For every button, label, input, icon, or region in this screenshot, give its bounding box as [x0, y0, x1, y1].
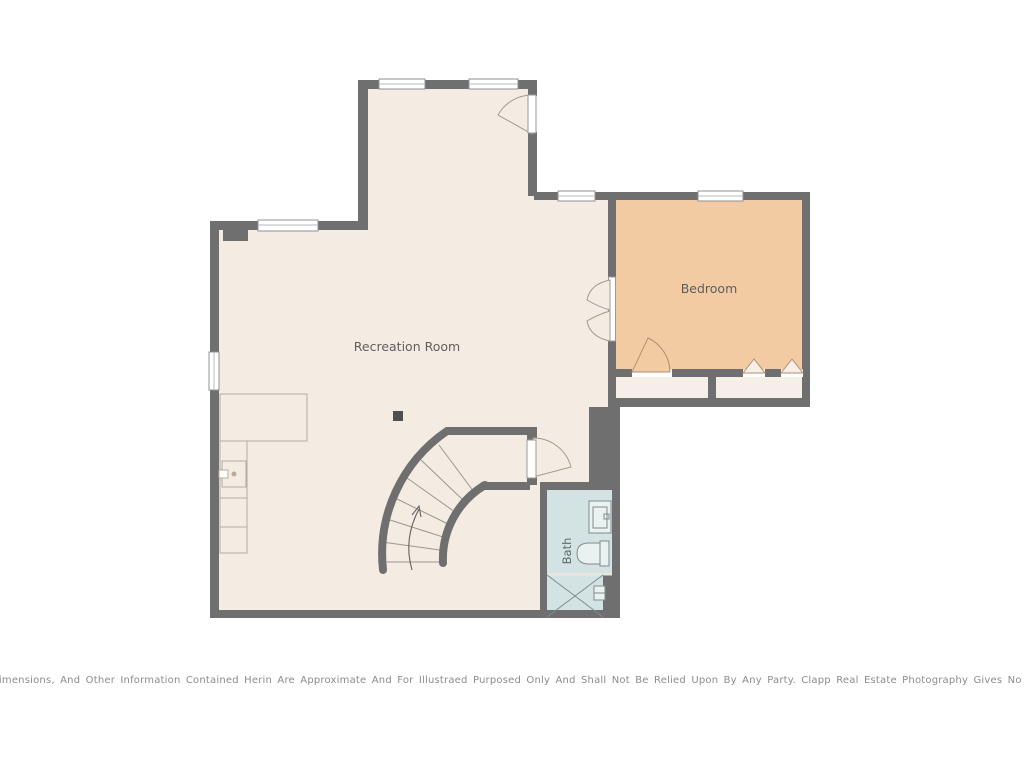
room-floors: [214, 84, 806, 617]
floor-plan-page: Recreation Room Bedroom Bath Dimensions,…: [0, 0, 1024, 768]
window: [209, 352, 219, 390]
bedroom-label: Bedroom: [681, 281, 738, 296]
recreation-room-label: Recreation Room: [354, 339, 460, 354]
window: [469, 79, 518, 89]
window: [558, 191, 595, 201]
bath-label: Bath: [560, 538, 574, 565]
window: [258, 220, 318, 231]
toilet: [577, 541, 609, 566]
sink: [589, 501, 611, 533]
window: [698, 191, 743, 201]
floor-plan-svg: Recreation Room Bedroom Bath: [0, 0, 1024, 768]
disclaimer-text: Dimensions, And Other Information Contai…: [0, 675, 1024, 686]
window: [379, 79, 425, 89]
support-post: [393, 411, 403, 421]
